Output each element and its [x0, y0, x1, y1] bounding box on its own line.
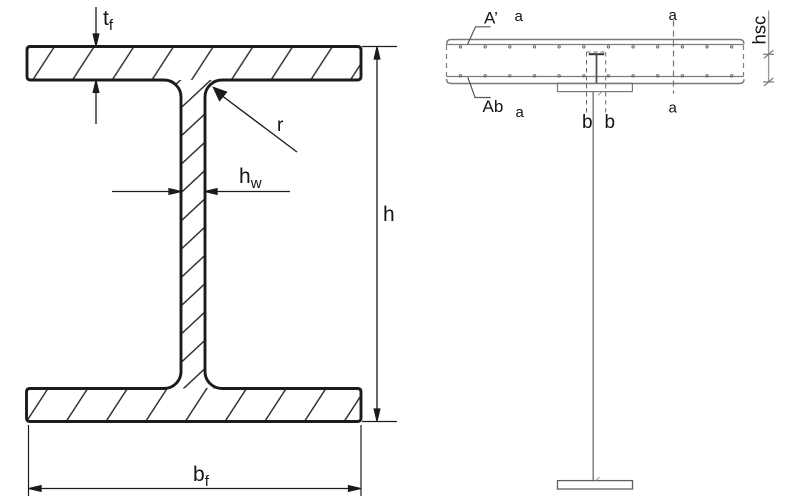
svg-text:b: b [605, 112, 616, 133]
svg-text:a: a [669, 7, 678, 24]
svg-text:b: b [582, 112, 593, 133]
svg-text:Ab: Ab [483, 97, 504, 116]
svg-text:a: a [669, 100, 678, 117]
svg-text:h: h [383, 203, 395, 226]
svg-text:a: a [516, 104, 525, 121]
svg-text:r: r [277, 115, 284, 136]
svg-text:a: a [515, 8, 524, 25]
svg-text:A’: A’ [484, 9, 498, 28]
svg-text:hsc: hsc [749, 16, 770, 45]
